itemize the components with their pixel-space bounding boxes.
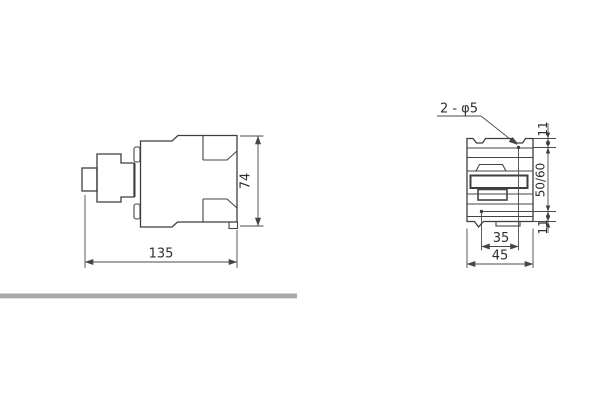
side-view-tab-top (134, 147, 140, 162)
dim-135-label: 135 (149, 247, 174, 262)
holes-callout-label: 2 - φ5 (440, 102, 478, 117)
dim-overall-width: 135 (85, 195, 237, 268)
dim-74-label: 74 (239, 173, 254, 190)
side-view-recess-top (203, 151, 237, 160)
divider-bar (0, 294, 297, 299)
side-view-recess-bottom (203, 199, 237, 208)
dim-hole-spacing: 35 (482, 231, 519, 247)
contactor-dimension-drawing: 135 74 (0, 0, 600, 400)
dimension-drawing-page: 135 74 (0, 0, 600, 400)
dim-bottom-11-label: 11 (536, 219, 550, 234)
front-view: 2 - φ5 11 50/60 11 35 45 (437, 102, 556, 269)
front-view-bottom-tab (496, 222, 520, 227)
side-view-din-foot (229, 222, 238, 229)
dim-35-label: 35 (493, 231, 510, 246)
dim-top-11-label: 11 (536, 121, 550, 136)
front-view-small-plate (478, 190, 507, 201)
dim-45-label: 45 (492, 249, 509, 264)
front-view-boss (476, 165, 506, 172)
dim-50-60-label: 50/60 (534, 163, 548, 198)
side-view-body-outline (141, 136, 238, 228)
side-view: 135 74 (82, 136, 264, 269)
dim-overall-height: 74 (239, 136, 264, 226)
side-view-button (82, 168, 97, 191)
front-view-body-outline (467, 139, 533, 228)
side-view-front-block (97, 154, 134, 202)
side-view-tab-bottom (134, 204, 140, 219)
